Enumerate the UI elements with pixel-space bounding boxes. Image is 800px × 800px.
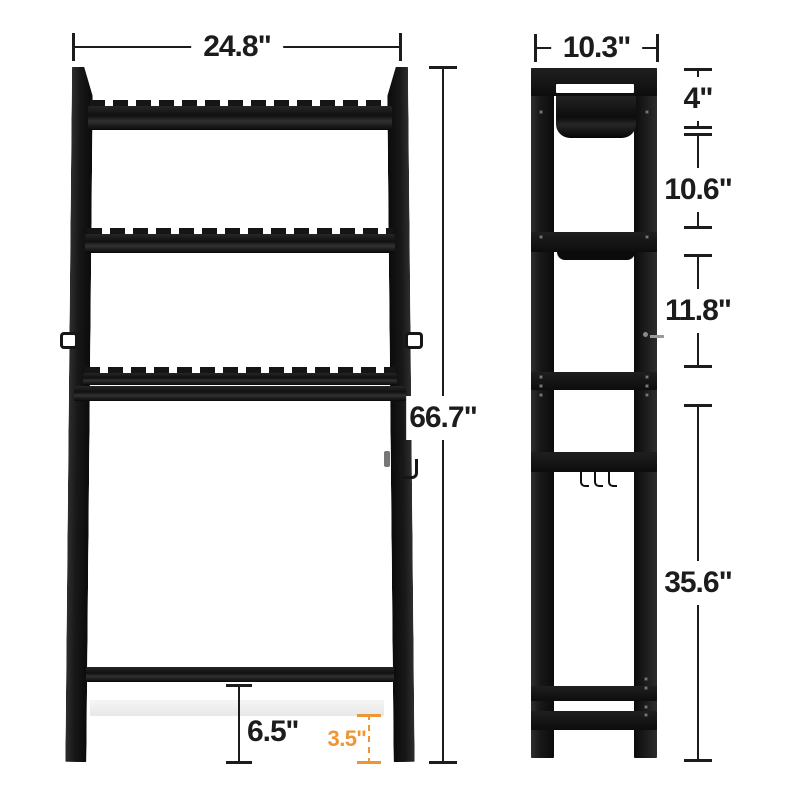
side-middle-section-label: 11.8" <box>662 289 734 333</box>
dimension-end-tick <box>357 761 381 764</box>
hanging-hook-1 <box>580 472 589 487</box>
hanging-hook-2 <box>594 472 603 487</box>
screw <box>644 677 648 681</box>
side-top-section-label: 4" <box>681 77 716 121</box>
front-clearance-label: 6.5'' <box>247 717 298 747</box>
dimension-end-tick <box>684 226 712 229</box>
side-lower-section-dimension: 35.6" <box>684 404 712 762</box>
dimension-end-tick <box>72 33 75 61</box>
side-joint-crossbar <box>531 372 657 390</box>
screw <box>644 705 648 709</box>
dimension-line <box>238 684 241 764</box>
side-eyelet-pin-dot <box>643 332 648 337</box>
dimension-end-tick <box>684 759 712 762</box>
screw <box>645 393 649 397</box>
front-width-label: 24.8" <box>191 32 283 62</box>
hanging-hook-3 <box>608 472 617 487</box>
side-lower-section-label: 35.6" <box>661 561 735 605</box>
dimension-end-tick <box>399 33 402 61</box>
side-upper-section-label: 10.6" <box>661 168 735 212</box>
side-right-post <box>634 68 657 758</box>
screw <box>644 713 648 717</box>
screw <box>645 375 649 379</box>
side-bottom-crossbar-lower <box>531 711 657 730</box>
front-shelf1 <box>88 106 392 130</box>
dimension-end-tick <box>429 761 457 764</box>
screw <box>539 235 543 239</box>
side-top-shelf-block <box>556 96 636 138</box>
front-left-post <box>65 67 93 762</box>
right-post-clip <box>384 451 390 467</box>
dimension-end-tick <box>684 126 712 129</box>
side-bottom-slot <box>556 701 634 711</box>
left-post-eyelet-hook <box>60 332 78 349</box>
dimension-end-tick <box>684 68 712 71</box>
dimension-end-tick <box>684 365 712 368</box>
side-view-rack <box>500 0 700 800</box>
right-post-j-hook <box>399 459 418 479</box>
dimension-end-tick <box>684 254 712 257</box>
screw <box>644 686 648 690</box>
front-height-label: 66.7" <box>406 396 480 440</box>
front-clearance-dimension: 6.5'' <box>226 684 252 764</box>
dimension-diagram: 24.8" 66.7" 6.5'' 3.5'' 10.3" 4" 10.6" <box>0 0 800 800</box>
dimension-end-tick <box>656 34 659 62</box>
side-bottom-crossbar-upper <box>531 686 657 701</box>
dimension-end-tick <box>684 133 712 136</box>
side-eyelet-pin <box>650 335 664 338</box>
screw <box>539 384 543 388</box>
dimension-end-tick <box>429 66 457 69</box>
dimension-end-tick <box>534 34 537 62</box>
screw <box>539 393 543 397</box>
front-width-dimension: 24.8" <box>72 33 402 61</box>
dimension-end-tick <box>226 684 252 687</box>
dimension-end-tick <box>684 404 712 407</box>
screw <box>645 235 649 239</box>
dimension-end-tick <box>357 714 381 717</box>
base-clearance-label: 3.5'' <box>327 728 366 750</box>
screw <box>539 110 543 114</box>
side-depth-dimension: 10.3" <box>534 34 659 62</box>
screw <box>539 375 543 379</box>
dimension-end-tick <box>226 761 252 764</box>
side-top-section-dimension: 4" <box>684 68 712 129</box>
screw <box>645 384 649 388</box>
base-clearance-dimension: 3.5'' <box>357 714 381 764</box>
side-depth-label: 10.3" <box>551 33 643 63</box>
front-view-rack <box>0 0 460 800</box>
side-middle-crossbar <box>531 232 657 252</box>
front-joint-beam <box>74 386 406 401</box>
side-hook-bar <box>531 452 657 472</box>
right-post-eyelet-hook <box>405 332 423 349</box>
side-top-slot <box>556 84 634 93</box>
front-bottom-crossbar <box>86 667 394 682</box>
dimension-line-dashed <box>368 714 370 764</box>
front-shelf3 <box>83 373 397 385</box>
front-shelf2 <box>85 234 395 253</box>
side-middle-shelf-lip <box>557 252 635 260</box>
front-height-dimension: 66.7" <box>429 66 457 764</box>
side-left-post <box>531 68 554 758</box>
side-middle-section-dimension: 11.8" <box>684 254 712 368</box>
side-upper-section-dimension: 10.6" <box>684 133 712 229</box>
screw <box>645 110 649 114</box>
